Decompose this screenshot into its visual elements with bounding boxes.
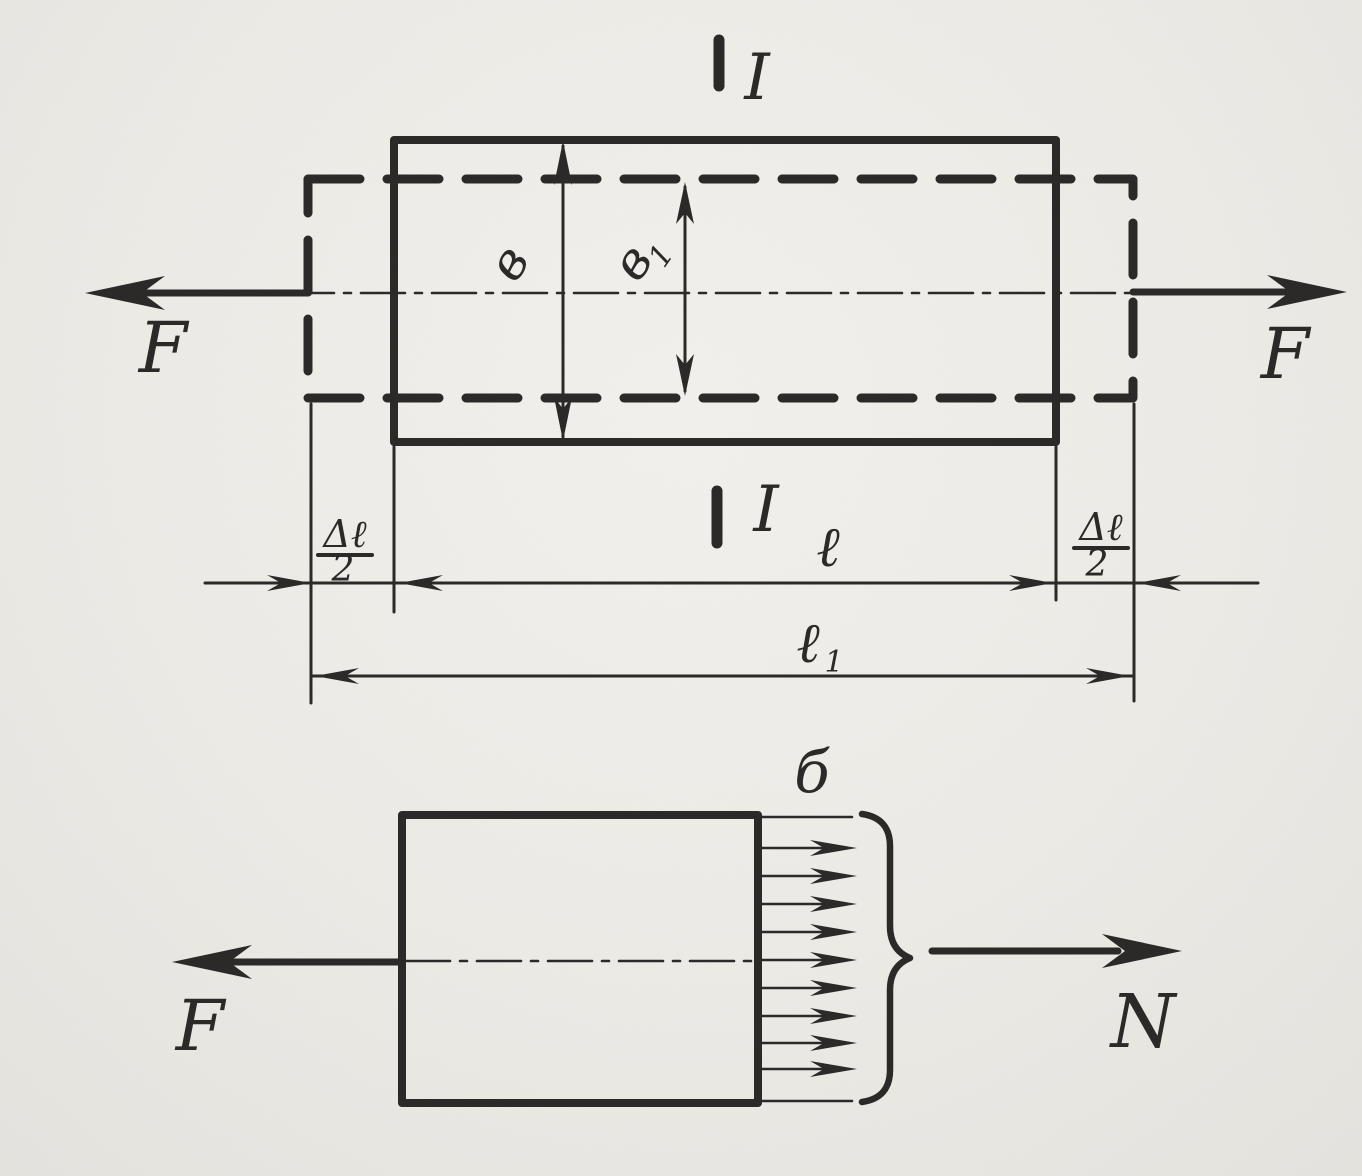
normal-force-label: N (1109, 979, 1178, 1065)
elongation-right-denominator: 2 (1085, 544, 1109, 585)
total-length-label: ℓ (796, 611, 820, 676)
length-original-label: ℓ (816, 515, 840, 580)
force-right-label: F (1259, 313, 1312, 395)
stress-label: б (794, 738, 830, 806)
cut-force-left-label: F (174, 985, 227, 1067)
elongation-left-denominator: 2 (331, 549, 355, 590)
elongation-right-numerator: Δℓ (1077, 505, 1122, 549)
section-label-bottom: I (752, 473, 780, 547)
scanned-diagram-page: F F I I в в (0, 0, 1362, 1176)
section-label-top: I (743, 41, 771, 115)
diagram-canvas: F F I I в в (0, 0, 1362, 1176)
total-length-subscript: 1 (824, 645, 843, 680)
force-left-label: F (137, 307, 190, 389)
